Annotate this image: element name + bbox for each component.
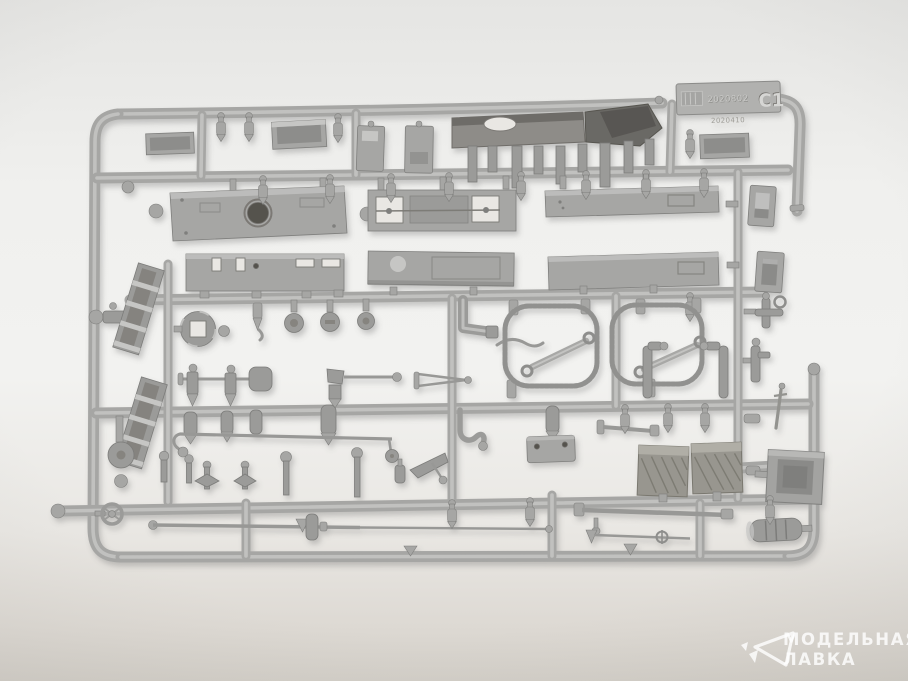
sprue-letter: C1: [758, 90, 784, 112]
bottle-pendant-part: [250, 410, 262, 434]
maker-logo-emboss: [681, 91, 702, 106]
runner-v-c: [670, 104, 672, 172]
runner-v-a: [201, 115, 202, 176]
hatch-panel-part: [356, 121, 385, 171]
runner-bottom: [121, 556, 788, 557]
stowage-tray-part: [700, 133, 750, 159]
open-box-part: [271, 120, 326, 150]
runner-end-flange: [790, 205, 804, 212]
capsule-pendant-part: [306, 514, 318, 540]
wood-crate-part: [691, 442, 743, 494]
tag-subcode: 2020410: [711, 116, 745, 125]
side-skirt-plate-part: [545, 186, 719, 217]
small-post-part: [159, 451, 169, 482]
watermark-line1: МОДЕЛЬНАЯ: [783, 630, 908, 649]
runner-end-cap: [808, 363, 820, 375]
photo-of-model-sprue: 2020802 2020802 C1 C1 2020410: [0, 0, 908, 681]
watermark-line2: ЛАВКА: [783, 650, 856, 669]
wood-crate-part: [637, 445, 689, 497]
sprue-photo-canvas: 2020802 2020802 C1 C1 2020410: [0, 0, 908, 681]
small-hatch-part: [748, 185, 777, 227]
stowage-tray-part: [146, 132, 195, 155]
tag-code: 2020802: [707, 94, 748, 105]
small-hatch-part: [755, 251, 785, 293]
slotted-plate-part: [186, 254, 344, 298]
bracket-plate-part: [527, 435, 576, 463]
runner-end-cap: [51, 504, 65, 518]
hatch-panel-part: [405, 121, 434, 173]
